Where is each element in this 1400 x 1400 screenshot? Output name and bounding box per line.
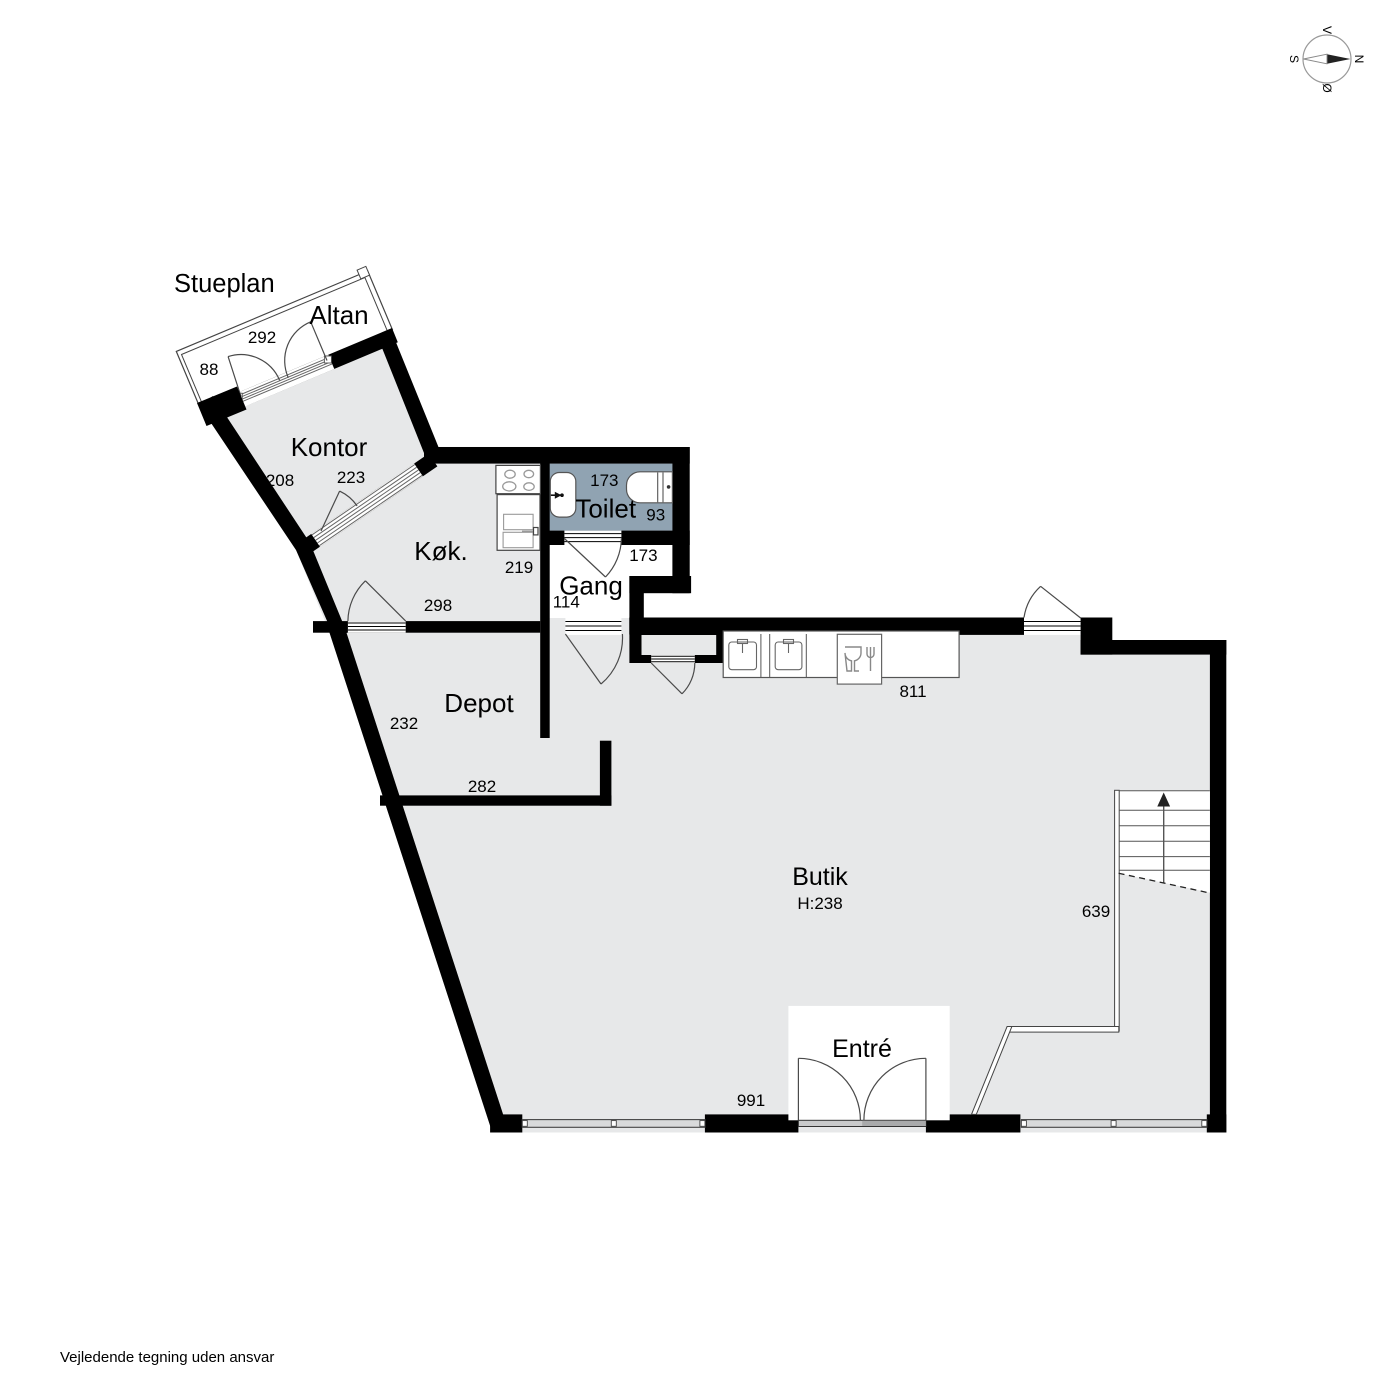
- svg-text:Entré: Entré: [832, 1035, 892, 1063]
- svg-text:Butik: Butik: [792, 863, 848, 891]
- svg-text:639: 639: [1082, 902, 1110, 921]
- svg-text:Altan: Altan: [309, 300, 368, 330]
- svg-text:298: 298: [424, 596, 452, 615]
- svg-text:H:238: H:238: [797, 894, 842, 913]
- svg-text:Toilet: Toilet: [575, 494, 636, 524]
- svg-text:282: 282: [468, 777, 496, 796]
- svg-text:292: 292: [248, 328, 276, 347]
- svg-text:Depot: Depot: [444, 688, 514, 718]
- svg-text:V: V: [1320, 26, 1334, 34]
- svg-text:S: S: [1287, 55, 1301, 63]
- svg-text:114: 114: [553, 592, 580, 611]
- svg-text:232: 232: [390, 714, 418, 733]
- svg-text:219: 219: [505, 558, 533, 577]
- svg-text:991: 991: [737, 1091, 765, 1110]
- svg-text:811: 811: [899, 682, 926, 701]
- svg-text:173: 173: [590, 471, 618, 490]
- svg-text:Kontor: Kontor: [291, 432, 368, 462]
- svg-text:88: 88: [200, 360, 219, 379]
- svg-text:208: 208: [266, 471, 294, 490]
- svg-text:Ø: Ø: [1320, 83, 1334, 92]
- svg-text:223: 223: [337, 468, 365, 487]
- svg-text:93: 93: [646, 506, 665, 525]
- svg-text:Vejledende tegning uden ansvar: Vejledende tegning uden ansvar: [60, 1349, 274, 1366]
- svg-text:Stueplan: Stueplan: [174, 270, 275, 298]
- svg-text:173: 173: [629, 546, 657, 565]
- svg-text:Køk.: Køk.: [414, 536, 467, 566]
- svg-text:N: N: [1352, 55, 1366, 64]
